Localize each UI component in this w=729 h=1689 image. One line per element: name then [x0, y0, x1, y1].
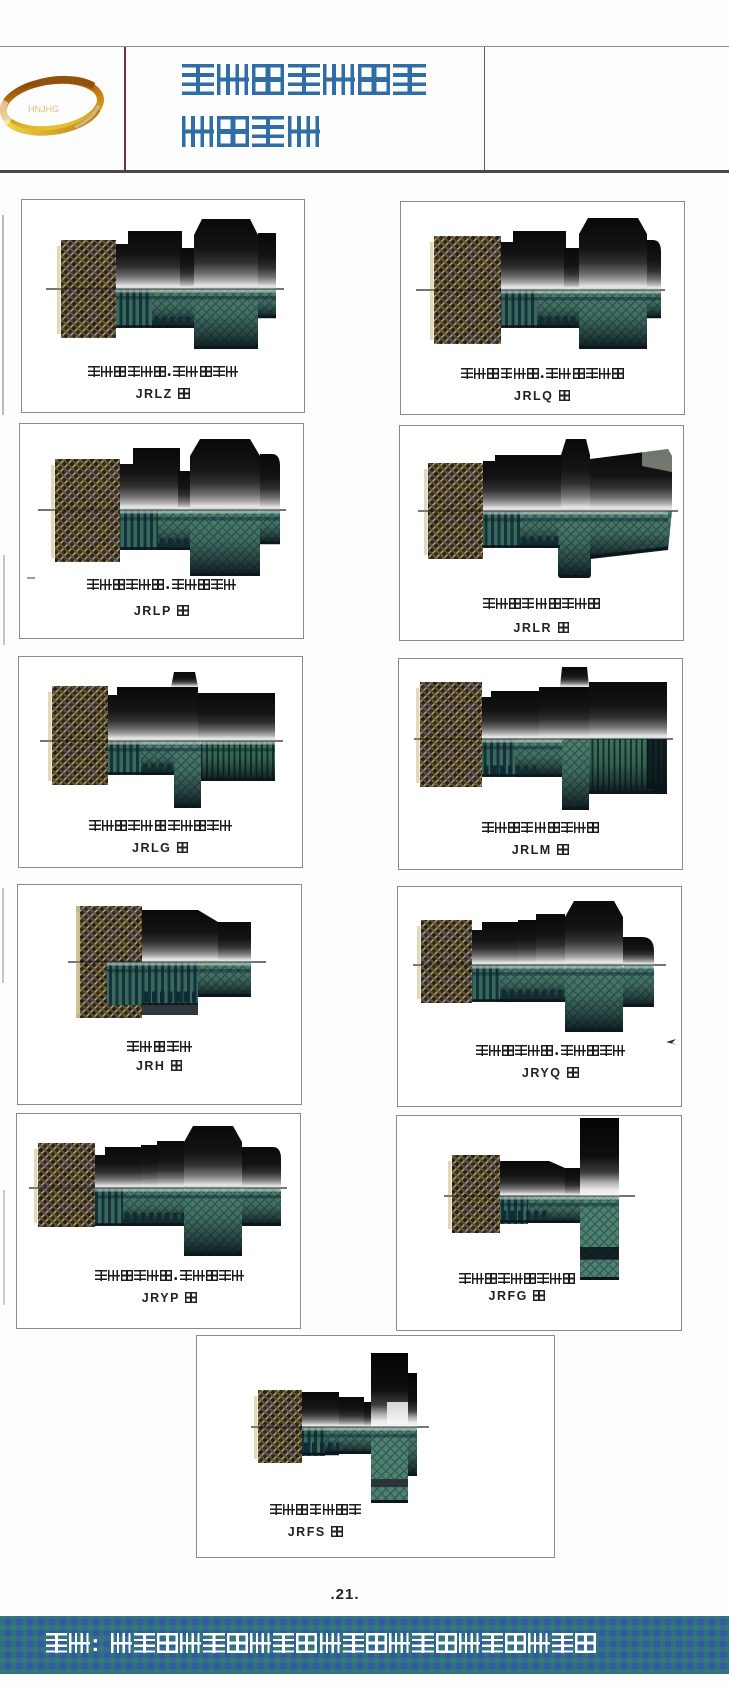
svg-text:HNJHG: HNJHG: [28, 104, 59, 114]
